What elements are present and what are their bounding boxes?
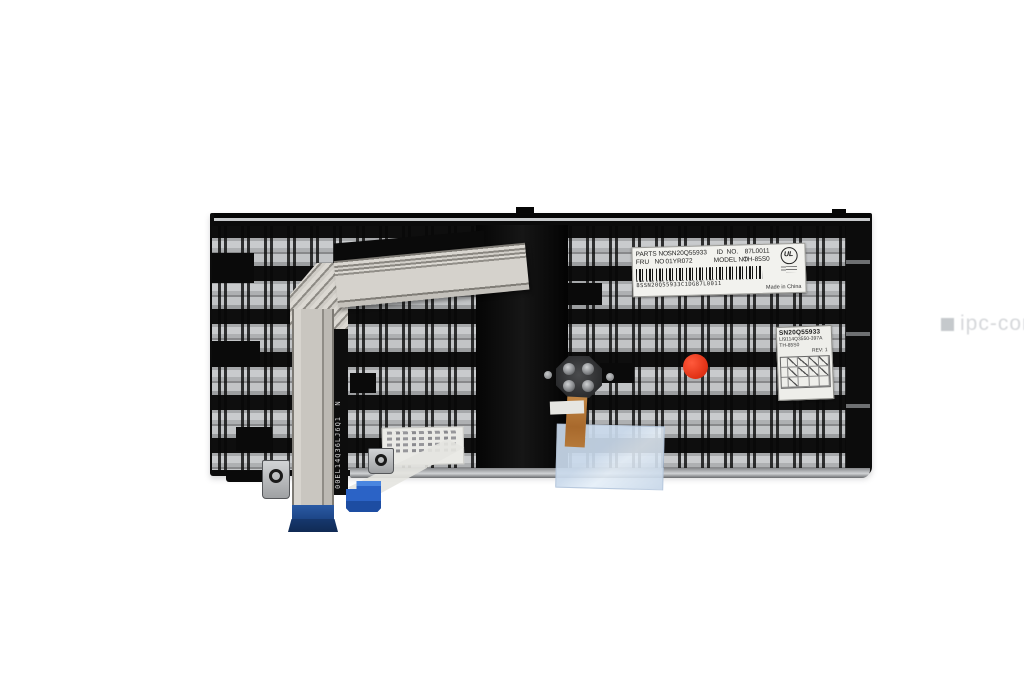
watermark-logo-icon (941, 318, 954, 331)
screw-boss (606, 373, 614, 381)
model-no-value: TH-85S0 (744, 256, 770, 265)
blue-connector (346, 481, 381, 512)
trackpoint-red-cap (683, 354, 708, 379)
key-back-block (350, 373, 376, 393)
trackpoint-contact-dot (563, 380, 575, 392)
key-back-block (212, 341, 260, 367)
trackpoint-contact-dot (563, 363, 575, 375)
key-back-block (236, 427, 272, 451)
ribbon-cable-blue-stiffener (292, 505, 334, 520)
qc-grid-cell (788, 377, 799, 387)
cable-print-text: 00EL14Q36LJ6Q1 N (334, 329, 342, 489)
qc-grid-cell (809, 377, 820, 387)
trackpoint-contact-dot (582, 363, 594, 375)
ribbon-cable-vertical (292, 309, 334, 507)
qc-grid-cell (798, 357, 809, 367)
mounting-bracket (368, 448, 394, 474)
mounting-bracket (262, 460, 290, 499)
key-back-block (562, 283, 602, 305)
mounting-tab (516, 207, 534, 214)
qc-grid-cell (799, 377, 810, 387)
product-photo: ipc-computer (0, 0, 1024, 680)
model-no-label: MODEL NO (714, 256, 744, 265)
trackpoint-contact-dot (582, 380, 594, 392)
certification-fine-print (781, 266, 797, 272)
qc-grid-cell (819, 356, 830, 366)
key-back-block (212, 253, 254, 283)
qc-label: SN20Q55933 LI9114Q3550-397A TH-85S0 REV:… (776, 325, 835, 401)
qc-check-grid (780, 355, 831, 389)
origin-text: Made in China (766, 284, 802, 291)
qc-grid-cell (819, 366, 830, 376)
main-parts-label: PARTS NO SN20Q55933 ID NO. 87L0011 FRU N… (631, 243, 806, 298)
qc-grid-cell (808, 357, 819, 367)
key-back-block (600, 363, 634, 383)
watermark-text: ipc-computer (960, 312, 1024, 336)
ul-certification-icon: UL (780, 247, 797, 264)
qc-grid-cell (809, 367, 820, 377)
fru-no-label: FRU NO (636, 258, 666, 267)
keyboard-rear-panel: PARTS NO SN20Q55933 ID NO. 87L0011 FRU N… (210, 213, 872, 476)
certification-zone: UL (776, 247, 801, 273)
mounting-tab (832, 209, 846, 214)
ribbon-cable-connector-end (288, 519, 338, 532)
trackpoint-module (556, 356, 602, 398)
qc-grid-cell (798, 367, 809, 377)
qc-grid-cell (819, 376, 830, 386)
right-edge-strip (846, 226, 870, 470)
screw-boss (544, 371, 552, 379)
flex-cable-band (550, 400, 584, 414)
watermark: ipc-computer (941, 312, 1024, 336)
sticker-code-row (387, 430, 459, 434)
parts-label-body: PARTS NO SN20Q55933 ID NO. 87L0011 FRU N… (635, 248, 770, 289)
fru-no-value: 01YR072 (665, 257, 713, 266)
qc-grid-cell (788, 357, 799, 367)
qc-grid-cell (788, 367, 799, 377)
